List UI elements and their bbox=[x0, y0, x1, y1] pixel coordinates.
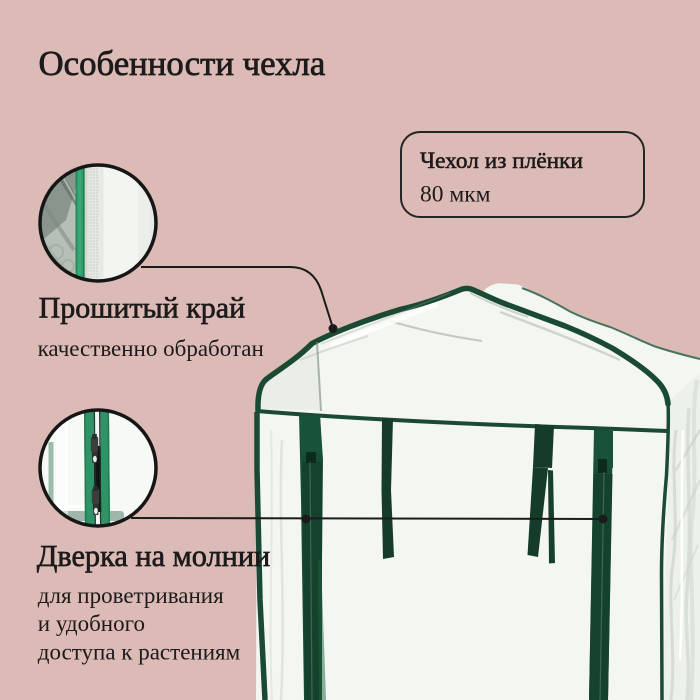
svg-text:Чехол из плёнки: Чехол из плёнки bbox=[420, 148, 583, 174]
svg-text:Дверка на молнии: Дверка на молнии bbox=[37, 539, 271, 573]
svg-text:доступа к растениям: доступа к растениям bbox=[38, 640, 241, 665]
svg-text:качественно обработан: качественно обработан bbox=[38, 336, 264, 361]
svg-text:Особенности чехла: Особенности чехла bbox=[39, 44, 326, 83]
svg-text:Прошитый край: Прошитый край bbox=[39, 292, 246, 325]
svg-text:для проветривания: для проветривания bbox=[38, 583, 224, 608]
svg-text:и удобного: и удобного bbox=[38, 611, 145, 636]
svg-text:80 мкм: 80 мкм bbox=[420, 182, 491, 208]
